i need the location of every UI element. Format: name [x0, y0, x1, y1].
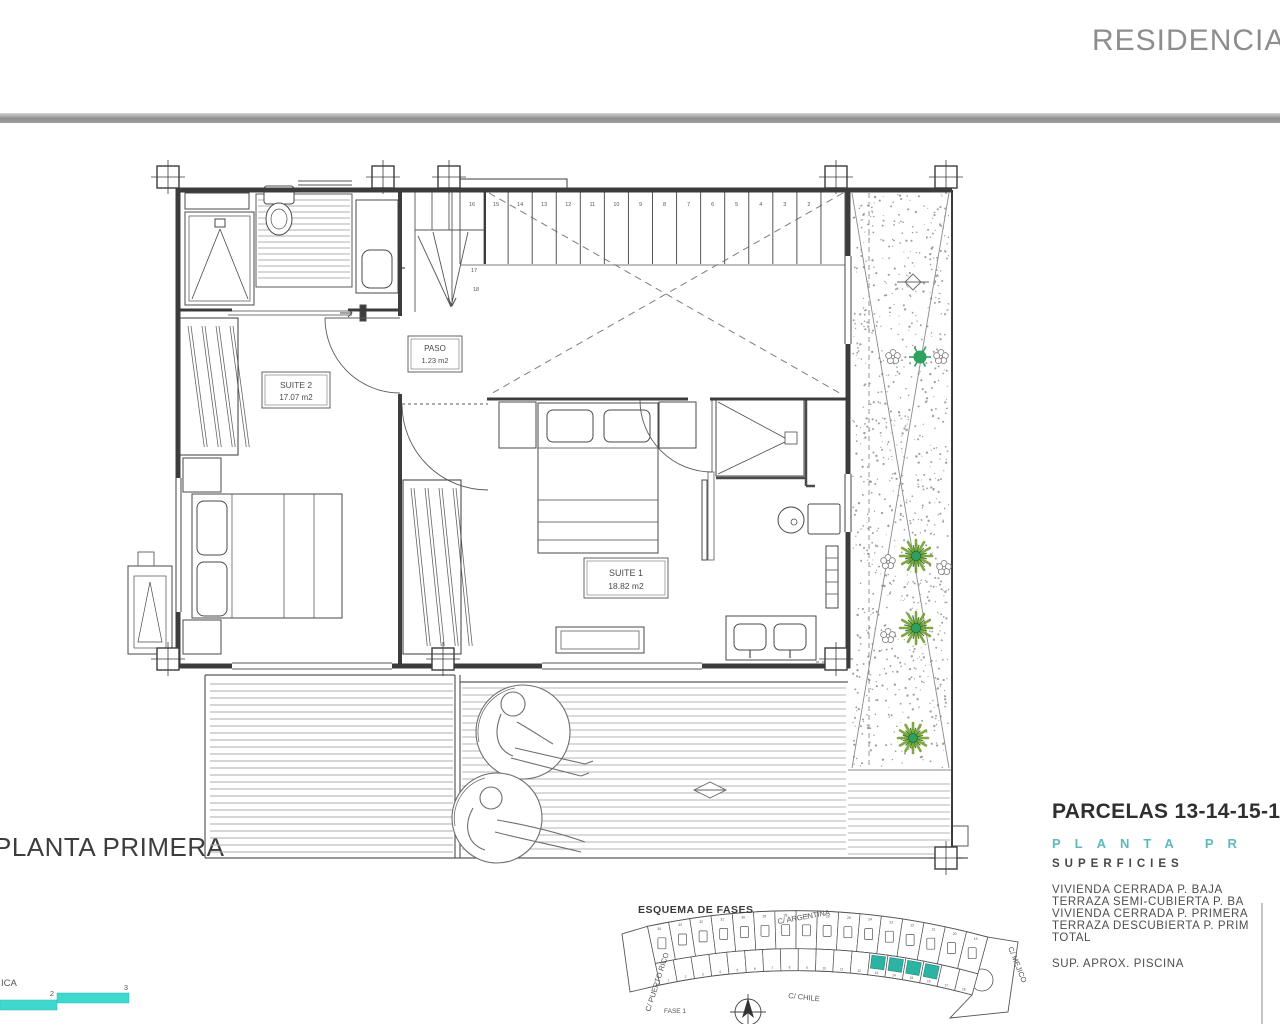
door-suite2: [325, 318, 400, 393]
scale-segment: [57, 993, 129, 1003]
label-suite2: SUITE 2 17.07 m2: [262, 372, 330, 408]
white-flower-icon: [886, 350, 901, 364]
tread-number: 15: [493, 202, 499, 208]
pillow: [197, 501, 227, 555]
highlighted-parcel: [906, 960, 922, 975]
tread-number: 7: [687, 202, 690, 208]
door-swings: [325, 318, 714, 560]
bed-suite2: [192, 494, 342, 618]
parcel-number: 19: [974, 937, 978, 941]
tread-number: 11: [589, 202, 595, 208]
white-flower-icon: [937, 561, 952, 575]
parcel-number: 9: [806, 966, 808, 970]
tread-number: 13: [541, 202, 547, 208]
parcel-number: 13: [875, 971, 879, 975]
parcel-number: 12: [857, 969, 861, 973]
street-chile: C/ CHILE: [788, 991, 820, 1003]
parcel-number: 20: [953, 932, 957, 936]
suite1-furniture: [499, 402, 696, 653]
svg-text:1.23 m2: 1.23 m2: [421, 356, 448, 365]
closets: [180, 318, 461, 654]
parcel-number: 23: [889, 920, 893, 924]
label-paso: PASO 1.23 m2: [408, 336, 462, 372]
north-arrow-icon: [730, 994, 766, 1024]
parcel-number: 25: [847, 916, 851, 920]
esquema-title: ESQUEMA DE FASES: [638, 904, 754, 916]
svg-text:SUITE 2: SUITE 2: [280, 380, 312, 390]
scale-bar: ICA 2 3: [0, 978, 129, 1010]
basin: [774, 624, 806, 650]
scale-segment: [0, 1000, 57, 1010]
scale-tick: 3: [124, 983, 128, 992]
highlighted-parcel: [923, 964, 939, 980]
tread-number: 8: [663, 202, 666, 208]
parcel-number: 33: [678, 923, 682, 927]
label-suite1: SUITE 1 18.82 m2: [584, 558, 668, 598]
parcel-number: 4: [719, 970, 721, 974]
parcel-number: 24: [868, 918, 872, 922]
staircase: 1615141312111098765432: [460, 192, 845, 264]
tread-number: 12: [565, 202, 571, 208]
stair-winders: [415, 190, 485, 312]
parcel-number: 22: [911, 924, 915, 928]
shower-tray-2: [716, 400, 804, 476]
svg-text:PASO: PASO: [424, 344, 446, 353]
winder-number: 17: [471, 268, 477, 274]
bathroom-2: [702, 400, 846, 662]
towel-ladder: [826, 546, 838, 608]
bathroom-1: [185, 186, 405, 321]
parcel-number: 5: [737, 968, 739, 972]
parcel-number: 15: [910, 976, 914, 980]
parcel-number: 2: [685, 975, 687, 979]
shelf: [185, 193, 249, 209]
plants: [881, 347, 952, 753]
esquema-de-fases: 3433323130292827262524232221201912345678…: [622, 911, 1018, 1018]
nightstand: [659, 402, 696, 448]
plan-sheet: { "sheet": { "header_title": "RESIDENCIA…: [0, 0, 1280, 1024]
parcel-number: 7: [771, 966, 773, 970]
parcel-number: 1: [667, 978, 669, 982]
nightstand: [499, 402, 536, 448]
toilet-1: [264, 186, 294, 235]
bed-suite1: [538, 403, 658, 553]
floor-plan-drawing: 1615141312111098765432 17 18: [0, 0, 1280, 1024]
room-labels: SUITE 2 17.07 m2 PASO 1.23 m2 SUITE 1 18…: [262, 336, 668, 598]
sliding-door-bath1: [228, 305, 366, 321]
svg-text:18.82 m2: 18.82 m2: [608, 581, 644, 591]
basin-1: [362, 250, 392, 288]
parcel-number: 31: [720, 918, 724, 922]
sink-counter: [726, 616, 816, 660]
figure-lounger-2: [452, 773, 585, 863]
pillow: [547, 410, 593, 442]
svg-text:17.07 m2: 17.07 m2: [279, 393, 313, 402]
highlighted-parcel: [870, 955, 885, 970]
parcel-number: 3: [702, 972, 704, 976]
parcel-number: 16: [927, 980, 931, 984]
parcel-number: 6: [754, 967, 756, 971]
winder-number: 18: [473, 287, 479, 293]
parcel-number: 8: [789, 966, 791, 970]
white-flower-icon: [881, 555, 896, 569]
tread-number: 5: [735, 202, 738, 208]
door-bath2: [640, 400, 712, 472]
cistern: [808, 504, 840, 534]
flower-plant-icon: [898, 723, 928, 753]
parcel-number: 30: [741, 916, 745, 920]
parcel-number: 29: [763, 914, 767, 918]
tread-number: 2: [807, 202, 810, 208]
parcel-number: 18: [962, 988, 966, 992]
suite2-furniture: [128, 458, 342, 654]
scale-tick: 2: [50, 989, 54, 998]
fase-label: FASE 1: [664, 1008, 686, 1015]
tread-number: 9: [639, 202, 642, 208]
nightstand: [183, 458, 221, 492]
tread-number: 14: [517, 202, 523, 208]
shower-head-icon: [215, 219, 225, 227]
parcel-number: 14: [892, 973, 896, 977]
svg-text:SUITE 1: SUITE 1: [609, 568, 643, 578]
parcel-number: 32: [699, 920, 703, 924]
parcel-number: 21: [932, 928, 936, 932]
flower-plant-icon: [900, 540, 932, 572]
parcel-number: 17: [945, 983, 949, 987]
ac-unit: [128, 552, 172, 654]
towel-rail: [702, 480, 707, 560]
white-flower-icon: [881, 629, 896, 643]
door-suite1: [402, 405, 488, 490]
parcel-number: 11: [840, 967, 844, 971]
tread-number: 4: [759, 202, 762, 208]
pillow: [197, 562, 227, 616]
column-symbol: [426, 642, 460, 676]
parcel-number: 10: [823, 966, 827, 970]
survey-marker-icon: [897, 274, 929, 290]
closet-suite2: [180, 318, 238, 455]
nightstand: [183, 620, 221, 654]
pillow: [604, 410, 650, 442]
toilet-2: [778, 507, 804, 533]
parcel-number: 34: [657, 927, 661, 931]
basin: [734, 624, 766, 650]
white-flower-icon: [934, 350, 949, 364]
wardrobe-suite1: [403, 480, 461, 654]
tread-number: 16: [469, 202, 475, 208]
tread-number: 3: [783, 202, 786, 208]
tread-number: 6: [711, 202, 714, 208]
deck-boards: [210, 684, 950, 854]
highlighted-parcel: [888, 958, 904, 973]
tread-number: 10: [613, 202, 619, 208]
scale-caption: ICA: [1, 978, 18, 989]
survey-marker-icon: [694, 782, 726, 798]
